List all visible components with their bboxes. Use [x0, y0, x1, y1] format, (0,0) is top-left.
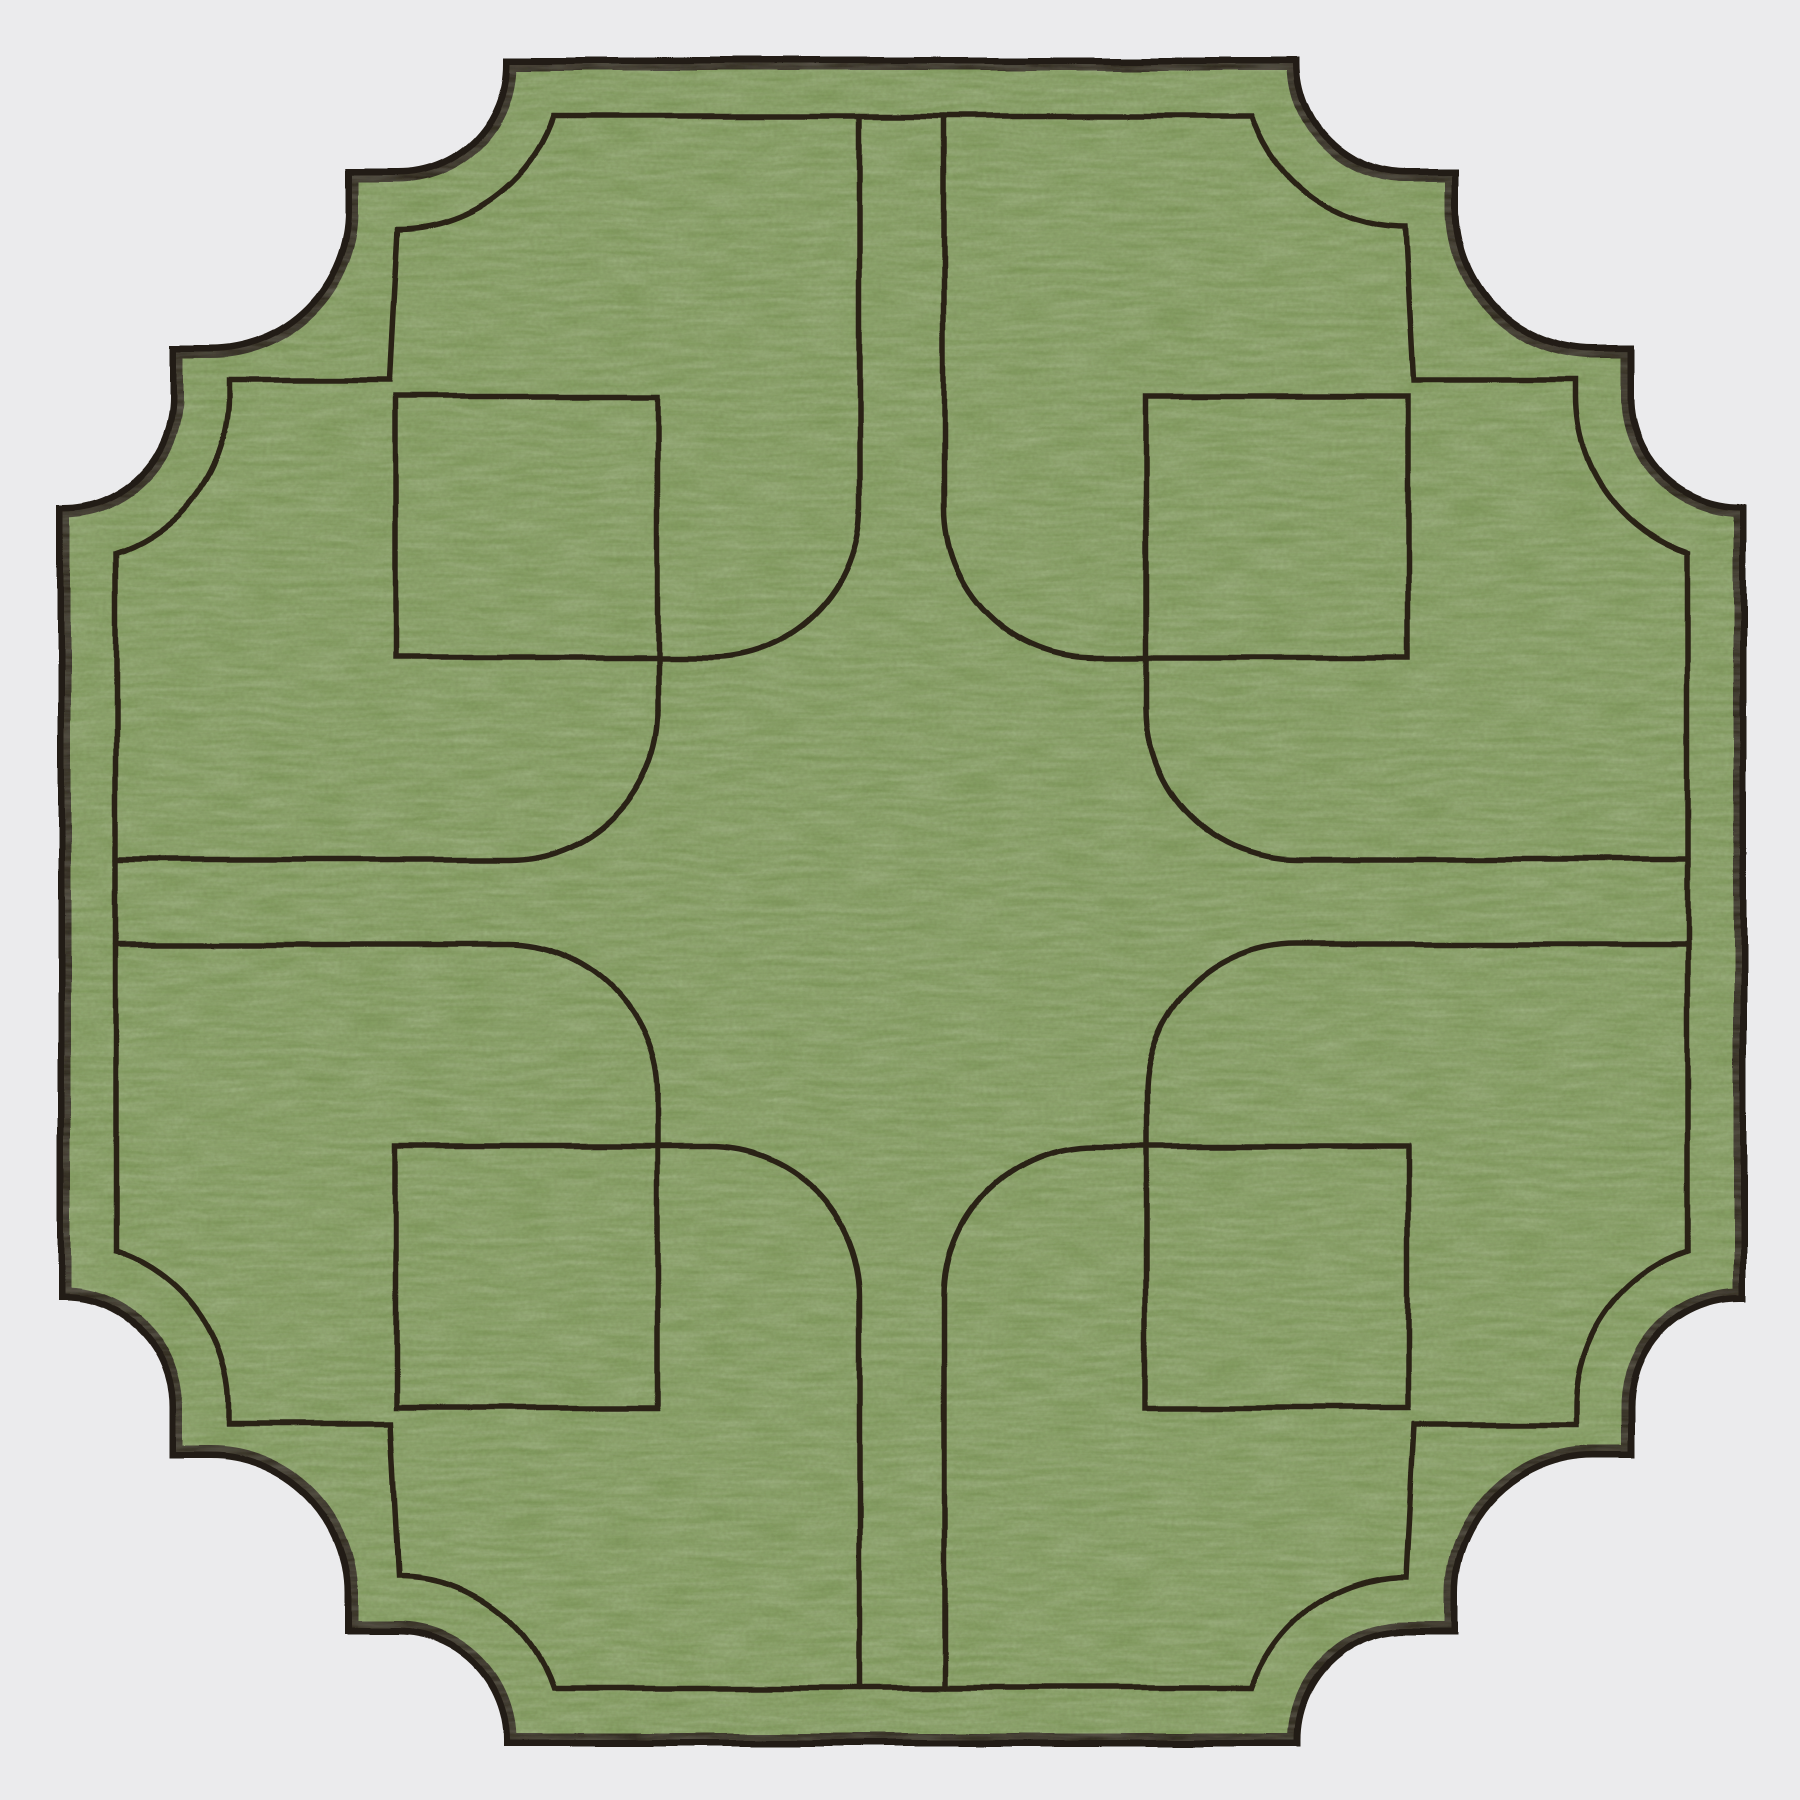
- linen-texture: [0, 0, 1800, 1800]
- product-photo: [0, 0, 1800, 1800]
- placemat: [0, 0, 1800, 1800]
- placemat-graphic: [0, 0, 1800, 1800]
- linen-texture-grain: [0, 0, 1800, 1800]
